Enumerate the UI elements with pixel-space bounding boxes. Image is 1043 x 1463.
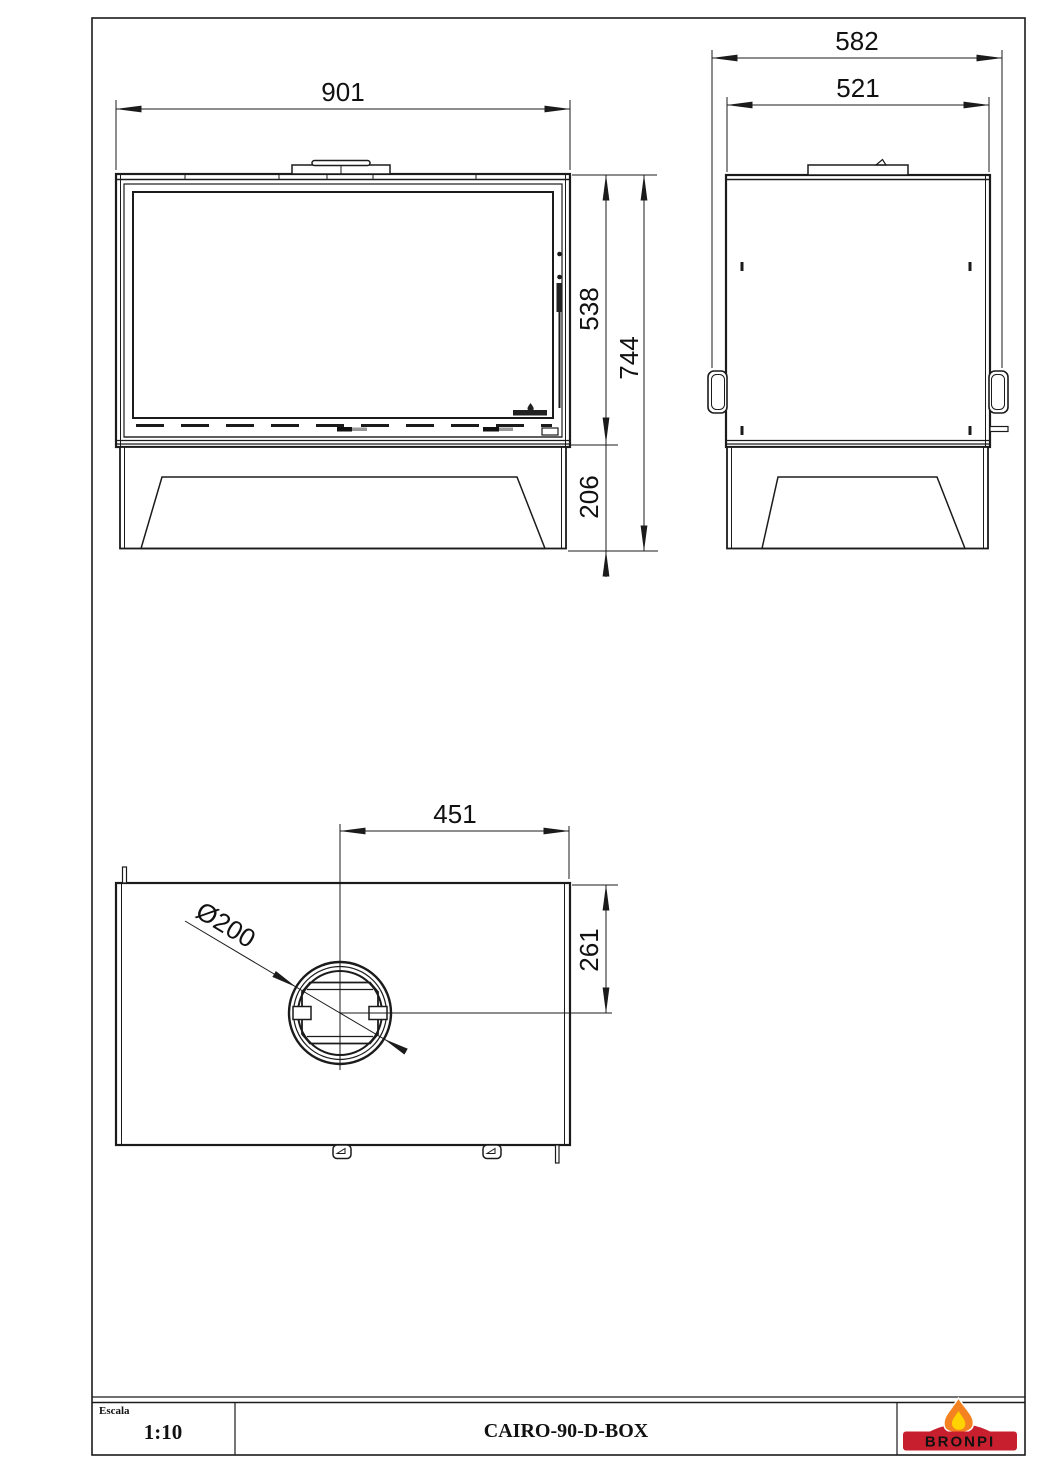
damper-lever bbox=[876, 160, 886, 166]
side-body-outline bbox=[726, 175, 990, 447]
front-body-outline bbox=[116, 174, 570, 447]
dim-front-base-height: 206 bbox=[574, 475, 604, 518]
brand-name: BRONPI bbox=[925, 1434, 995, 1451]
front-air-slider-left bbox=[337, 427, 367, 432]
front-flue-collar bbox=[292, 161, 390, 175]
dim-top-flue-offset-y: 261 bbox=[574, 928, 604, 971]
side-handle-left bbox=[708, 371, 727, 413]
hinge-dot-bottom bbox=[557, 275, 562, 280]
brand-logo: BRONPI bbox=[903, 1398, 1017, 1451]
dim-front-width: 901 bbox=[321, 77, 364, 107]
front-control-plate bbox=[542, 428, 558, 435]
front-base bbox=[120, 447, 566, 549]
side-view bbox=[708, 160, 1008, 549]
top-body-outline bbox=[116, 883, 570, 1145]
dim-side-body-depth: 521 bbox=[836, 73, 879, 103]
drawing-title: CAIRO-90-D-BOX bbox=[484, 1420, 649, 1442]
top-front-tabs bbox=[333, 1145, 501, 1159]
side-handle-right bbox=[989, 371, 1008, 413]
scale-value: 1:10 bbox=[144, 1420, 183, 1444]
side-base bbox=[727, 447, 988, 549]
side-ash-knob bbox=[990, 427, 1008, 432]
dim-side-overall-depth: 582 bbox=[835, 26, 878, 56]
side-flue-collar bbox=[808, 160, 908, 176]
hinge-dot-top bbox=[557, 252, 562, 257]
front-air-slider-right bbox=[483, 427, 513, 432]
top-front-pin-right bbox=[556, 1145, 560, 1163]
dim-front-body-height: 538 bbox=[574, 287, 604, 330]
front-view bbox=[116, 161, 570, 549]
top-rear-pin-left bbox=[123, 867, 127, 883]
scale-label: Escala bbox=[99, 1405, 130, 1417]
dim-top-flue-offset-x: 451 bbox=[433, 799, 476, 829]
flue-tab-left bbox=[293, 1007, 311, 1020]
dim-front-overall-height: 744 bbox=[614, 336, 644, 379]
title-block: Escala 1:10 CAIRO-90-D-BOX BRONPI bbox=[92, 1397, 1025, 1455]
drawing-sheet: 901 538 744 206 582 521 451 261 bbox=[0, 0, 1043, 1463]
top-view bbox=[116, 824, 612, 1163]
technical-drawing: 901 538 744 206 582 521 451 261 bbox=[0, 0, 1043, 1463]
